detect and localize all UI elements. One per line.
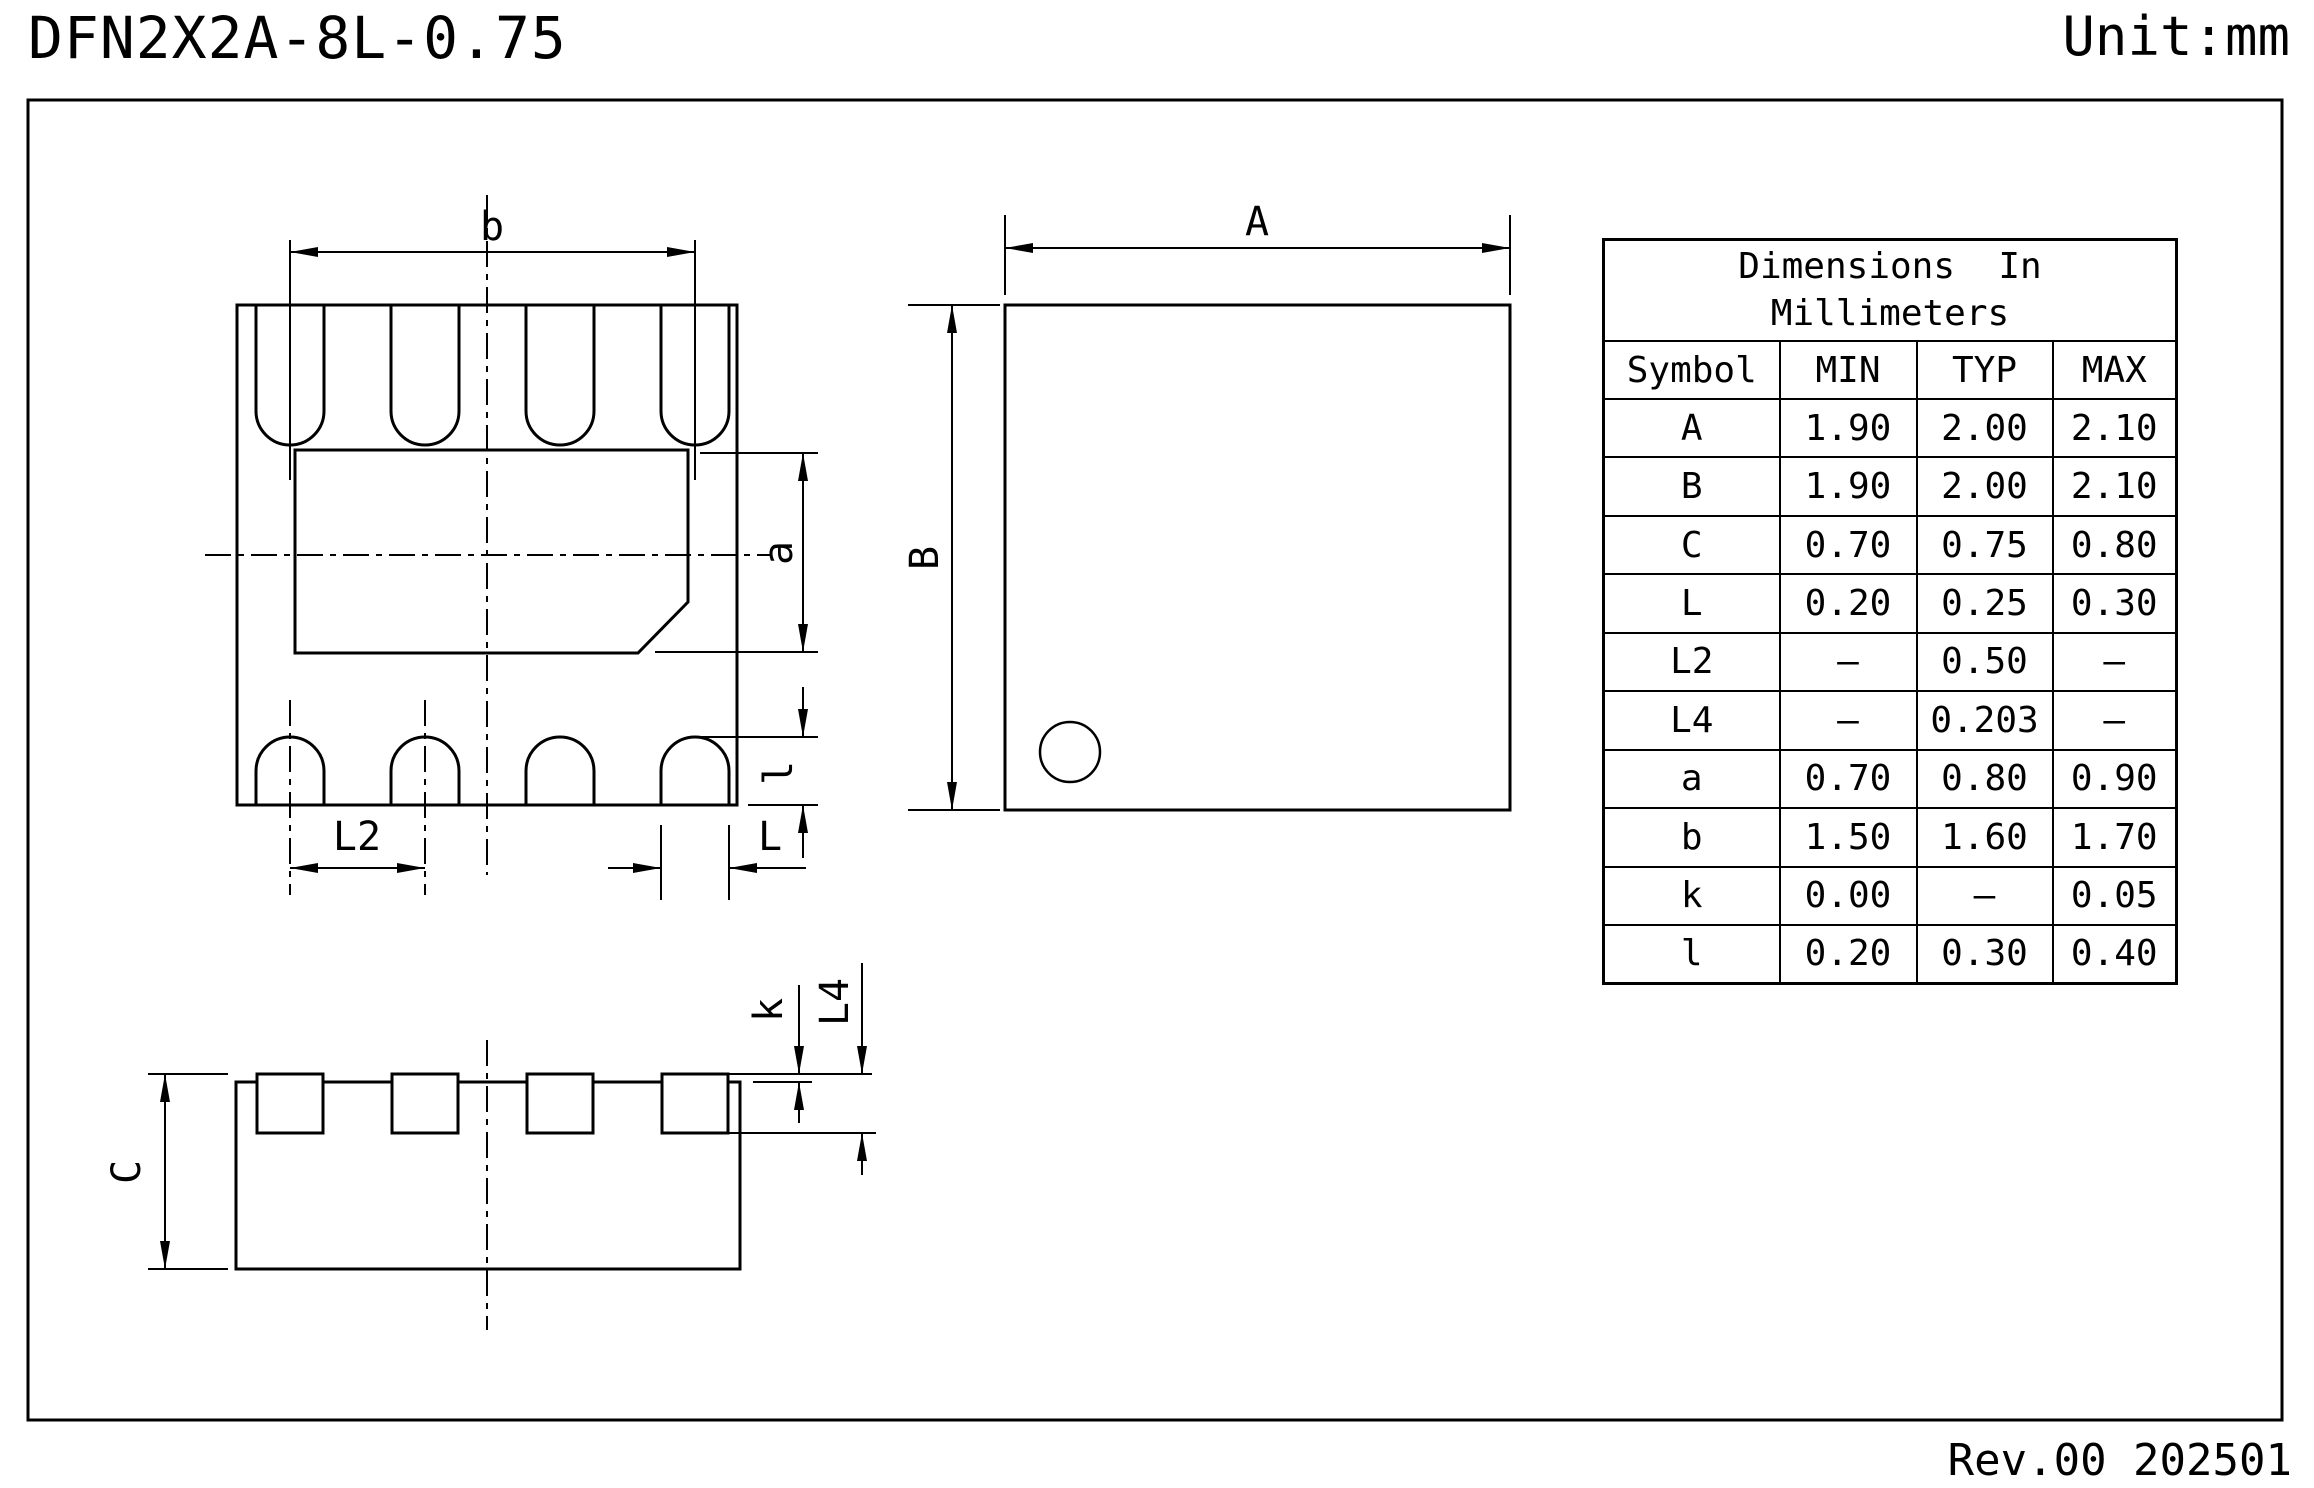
value-cell: – [1917, 867, 2053, 925]
table-header-row: Symbol MIN TYP MAX [1604, 341, 2177, 399]
value-cell: 0.05 [2053, 867, 2177, 925]
pad-bottom-3 [526, 737, 594, 805]
value-cell: 1.50 [1780, 808, 1917, 866]
table-row: L0.200.250.30 [1604, 574, 2177, 632]
value-cell: 0.80 [1917, 750, 2053, 808]
exposed-pad [295, 450, 688, 653]
value-cell: 0.30 [2053, 574, 2177, 632]
side-view: C k L4 [104, 963, 876, 1330]
pad-top-2 [391, 305, 459, 445]
symbol-cell: L4 [1604, 691, 1780, 749]
symbol-cell: C [1604, 516, 1780, 574]
value-cell: 0.20 [1780, 574, 1917, 632]
side-pad-1 [257, 1074, 323, 1133]
table-row: L4–0.203– [1604, 691, 2177, 749]
table-title-line1: Dimensions In [1605, 244, 2175, 291]
table-title-cell: Dimensions In Millimeters [1604, 240, 2177, 342]
column-header-symbol: Symbol [1604, 341, 1780, 399]
symbol-cell: k [1604, 867, 1780, 925]
table-row: L2–0.50– [1604, 633, 2177, 691]
dim-label-B: B [902, 546, 948, 570]
table-row: B1.902.002.10 [1604, 457, 2177, 515]
table-row: a0.700.800.90 [1604, 750, 2177, 808]
symbol-cell: L2 [1604, 633, 1780, 691]
table-title-row: Dimensions In Millimeters [1604, 240, 2177, 342]
symbol-cell: L [1604, 574, 1780, 632]
dim-label-L2: L2 [333, 814, 381, 860]
symbol-cell: A [1604, 399, 1780, 457]
value-cell: 0.90 [2053, 750, 2177, 808]
symbol-cell: l [1604, 925, 1780, 984]
value-cell: 1.70 [2053, 808, 2177, 866]
dim-label-l: l [756, 761, 802, 785]
value-cell: 0.25 [1917, 574, 2053, 632]
symbol-cell: B [1604, 457, 1780, 515]
table-row: b1.501.601.70 [1604, 808, 2177, 866]
engineering-drawing-page: { "header": { "title": "DFN2X2A-8L-0.75"… [0, 0, 2314, 1488]
side-pad-3 [527, 1074, 593, 1133]
value-cell: 1.90 [1780, 399, 1917, 457]
table-row: A1.902.002.10 [1604, 399, 2177, 457]
dim-label-k: k [746, 998, 792, 1022]
unit-label: Unit:mm [2062, 5, 2290, 68]
value-cell: 0.70 [1780, 516, 1917, 574]
dim-label-a: a [756, 541, 802, 565]
value-cell: – [2053, 691, 2177, 749]
value-cell: 0.70 [1780, 750, 1917, 808]
side-pad-4 [662, 1074, 728, 1133]
dim-label-L: L [758, 814, 782, 860]
value-cell: 0.30 [1917, 925, 2053, 984]
value-cell: 1.60 [1917, 808, 2053, 866]
table-row: l0.200.300.40 [1604, 925, 2177, 984]
top-view: A B [902, 199, 1510, 810]
column-header-typ: TYP [1917, 341, 2053, 399]
value-cell: 2.10 [2053, 457, 2177, 515]
value-cell: 1.90 [1780, 457, 1917, 515]
table-title-line2: Millimeters [1605, 291, 2175, 338]
dim-label-A: A [1245, 199, 1269, 245]
dim-label-b: b [480, 204, 504, 250]
side-pad-2 [392, 1074, 458, 1133]
bottom-view: b a l L L2 [205, 195, 818, 900]
value-cell: 0.20 [1780, 925, 1917, 984]
value-cell: 0.203 [1917, 691, 2053, 749]
value-cell: 0.80 [2053, 516, 2177, 574]
value-cell: – [1780, 633, 1917, 691]
dimensions-table: Dimensions In Millimeters Symbol MIN TYP… [1602, 238, 2178, 985]
value-cell: 2.10 [2053, 399, 2177, 457]
pad-top-3 [526, 305, 594, 445]
symbol-cell: a [1604, 750, 1780, 808]
page-title: DFN2X2A-8L-0.75 [28, 4, 567, 72]
package-body-top-view [1005, 305, 1510, 810]
column-header-max: MAX [2053, 341, 2177, 399]
value-cell: – [2053, 633, 2177, 691]
value-cell: 2.00 [1917, 457, 2053, 515]
dimensions-table-body: A1.902.002.10B1.902.002.10C0.700.750.80L… [1604, 399, 2177, 984]
dim-label-L4: L4 [812, 978, 858, 1026]
dim-label-C: C [104, 1160, 150, 1184]
table-row: C0.700.750.80 [1604, 516, 2177, 574]
value-cell: 2.00 [1917, 399, 2053, 457]
value-cell: 0.75 [1917, 516, 2053, 574]
pin1-indicator-circle [1040, 722, 1100, 782]
column-header-min: MIN [1780, 341, 1917, 399]
value-cell: 0.00 [1780, 867, 1917, 925]
pad-bottom-4 [661, 737, 729, 805]
revision-label: Rev.00 202501 [1948, 1435, 2292, 1486]
symbol-cell: b [1604, 808, 1780, 866]
value-cell: – [1780, 691, 1917, 749]
table-row: k0.00–0.05 [1604, 867, 2177, 925]
value-cell: 0.40 [2053, 925, 2177, 984]
value-cell: 0.50 [1917, 633, 2053, 691]
